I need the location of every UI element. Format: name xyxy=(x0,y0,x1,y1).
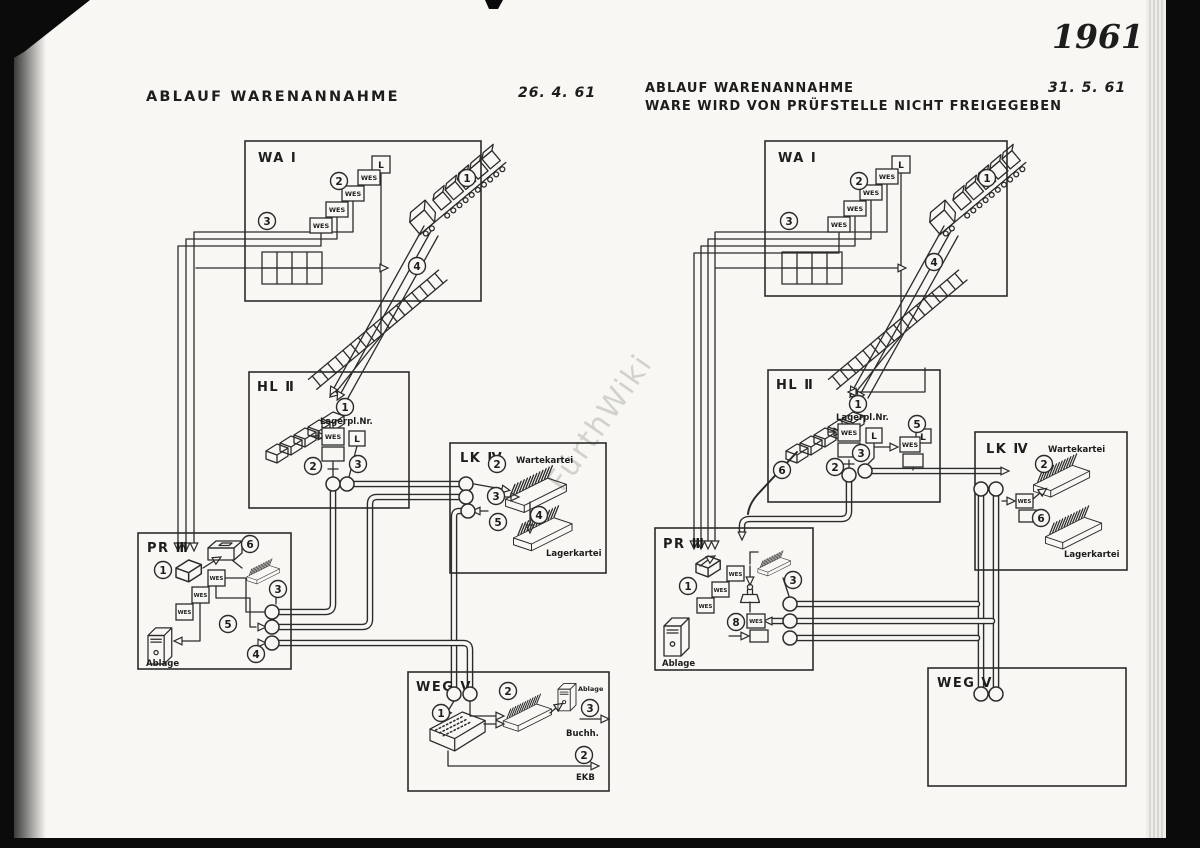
wes-slip-label: WES xyxy=(325,433,342,441)
tube-endpoint xyxy=(989,482,1003,496)
pneumatic-tubes-right xyxy=(742,471,1001,687)
svg-text:4: 4 xyxy=(252,649,259,661)
tube-endpoint xyxy=(463,687,477,701)
tube-endpoint xyxy=(461,504,475,518)
wes-slip-label: WES xyxy=(345,190,362,198)
pallet-cube-icon xyxy=(280,436,302,455)
l-slip-label: L xyxy=(898,161,904,171)
tube-endpoint xyxy=(340,477,354,491)
pneumatic-tubes-left xyxy=(279,484,470,687)
station-pr-left: PR Ⅲ WES WES WES Ablage 1 6 3 5 4 xyxy=(138,533,291,669)
svg-text:8: 8 xyxy=(732,617,739,629)
svg-text:3: 3 xyxy=(354,459,361,471)
wa-label: WA Ⅰ xyxy=(258,151,297,166)
lagerkartei-note: Lagerkartei xyxy=(546,549,602,559)
step-circle: 6 xyxy=(774,462,791,479)
card-stack-icon xyxy=(758,551,791,576)
watermark: FürthWiki xyxy=(540,347,660,497)
step-circle: 1 xyxy=(680,578,697,595)
svg-text:2: 2 xyxy=(493,459,500,471)
station-wa-left: WA Ⅰ L WES WES WES WES 1 2 3 4 xyxy=(245,141,511,389)
svg-text:5: 5 xyxy=(913,419,920,431)
svg-text:1: 1 xyxy=(437,708,444,720)
step-circle: 2 xyxy=(1036,456,1053,473)
tube-endpoint xyxy=(858,464,872,478)
step-circle: 8 xyxy=(728,614,745,631)
tube-endpoint xyxy=(974,687,988,701)
wes-slip-label: WES xyxy=(902,441,919,449)
wes-slip-label: WES xyxy=(194,593,208,599)
svg-text:4: 4 xyxy=(535,510,542,522)
lk-label: LK Ⅳ xyxy=(986,442,1029,457)
svg-text:2: 2 xyxy=(855,176,862,188)
step-circle: 3 xyxy=(488,488,505,505)
buchhaltung-note: Buchh. xyxy=(566,729,599,739)
ekb-note: EKB xyxy=(576,773,595,783)
tube-endpoint xyxy=(783,631,797,645)
book-spine-shadow xyxy=(0,0,14,848)
rubber-stamp-icon xyxy=(741,584,760,602)
wes-slip-label: WES xyxy=(729,572,743,578)
svg-text:6: 6 xyxy=(246,539,253,551)
svg-text:2: 2 xyxy=(580,750,587,762)
hl-label: HL Ⅱ xyxy=(776,378,814,393)
svg-text:3: 3 xyxy=(586,703,593,715)
spine-gradient xyxy=(14,0,46,848)
svg-text:3: 3 xyxy=(789,575,796,587)
step-circle: 4 xyxy=(409,258,426,275)
right-title: ABLAUF WARENANNAHME xyxy=(645,81,854,96)
delivery-truck-icon xyxy=(404,144,511,240)
pallet-cube-icon xyxy=(294,428,316,447)
wes-tray xyxy=(903,454,923,467)
pallet-cube-icon xyxy=(786,444,808,463)
sorting-grid-icon xyxy=(262,252,322,284)
l-slip-label: L xyxy=(354,435,360,445)
page-stack xyxy=(1146,0,1168,848)
svg-text:1: 1 xyxy=(159,565,166,577)
station-pr-right: PR Ⅲ WES WES WES WES Ablage 1 3 8 xyxy=(655,528,813,670)
wes-tray xyxy=(322,447,344,461)
wes-tray xyxy=(750,630,768,642)
wes-slip-label: WES xyxy=(178,610,192,616)
step-circle: 3 xyxy=(781,213,798,230)
step-circle: 3 xyxy=(785,572,802,589)
tube-endpoint xyxy=(783,614,797,628)
step-circle: 1 xyxy=(433,705,450,722)
step-circle: 1 xyxy=(459,170,476,187)
wa-label: WA Ⅰ xyxy=(778,151,817,166)
svg-text:1: 1 xyxy=(983,173,990,185)
step-circle: 2 xyxy=(827,459,844,476)
svg-text:2: 2 xyxy=(335,176,342,188)
flow-lines-left xyxy=(178,173,601,766)
pr-label: PR Ⅲ xyxy=(147,541,189,556)
wes-slip-label: WES xyxy=(210,576,224,582)
left-date: 26. 4. 61 xyxy=(518,85,596,101)
svg-text:2: 2 xyxy=(831,462,838,474)
step-circle: 3 xyxy=(270,581,287,598)
svg-text:3: 3 xyxy=(263,216,270,228)
conveyor-ramp-icon xyxy=(828,270,967,389)
step-circle: 1 xyxy=(850,396,867,413)
station-hl-left: HL Ⅱ Lagerpl.Nr. WES L 1 2 3 xyxy=(249,372,409,508)
tube-endpoint xyxy=(265,605,279,619)
right-subtitle: WARE WIRD VON PRÜFSTELLE NICHT FREIGEGEB… xyxy=(645,98,1062,114)
step-circle: 1 xyxy=(337,399,354,416)
l-slip-label: L xyxy=(920,433,926,443)
hl-label: HL Ⅱ xyxy=(257,380,295,395)
tube-endpoint xyxy=(326,477,340,491)
top-notch xyxy=(485,0,503,9)
right-date: 31. 5. 61 xyxy=(1048,80,1126,96)
svg-text:6: 6 xyxy=(778,465,785,477)
svg-text:1: 1 xyxy=(684,581,691,593)
svg-text:4: 4 xyxy=(413,261,420,273)
lagerplatz-note: Lagerpl.Nr. xyxy=(836,413,889,423)
svg-text:2: 2 xyxy=(1040,459,1047,471)
delivery-truck-icon xyxy=(924,144,1031,240)
wes-slip-label: WES xyxy=(1018,499,1032,505)
right-book-edge xyxy=(1166,0,1200,848)
svg-text:1: 1 xyxy=(854,399,861,411)
return-goods-line xyxy=(748,452,797,514)
step-circle: 4 xyxy=(531,507,548,524)
step-circle: 5 xyxy=(909,416,926,433)
step-circle: 2 xyxy=(331,173,348,190)
lagerplatz-note: Lagerpl.Nr. xyxy=(320,417,373,427)
svg-text:2: 2 xyxy=(309,461,316,473)
svg-text:3: 3 xyxy=(274,584,281,596)
step-circle: 4 xyxy=(248,646,265,663)
tube-endpoint xyxy=(459,490,473,504)
tube-endpoint xyxy=(447,687,461,701)
wes-slip-label: WES xyxy=(714,588,728,594)
tube-endpoint xyxy=(265,636,279,650)
tube-endpoint xyxy=(265,620,279,634)
step-circle: 5 xyxy=(220,616,237,633)
pallet-cube-icon xyxy=(814,428,836,447)
tube-endpoint xyxy=(783,597,797,611)
step-circle: 2 xyxy=(500,683,517,700)
wes-slip-label: WES xyxy=(841,429,858,437)
step-circle: 1 xyxy=(155,562,172,579)
wes-slip-label: WES xyxy=(313,222,330,230)
step-circle: 6 xyxy=(242,536,259,553)
pallet-cube-icon xyxy=(266,444,288,463)
station-weg-right: WEG Ⅴ xyxy=(928,668,1126,786)
svg-text:2: 2 xyxy=(504,686,511,698)
binder-icon xyxy=(664,618,689,656)
svg-text:6: 6 xyxy=(1037,513,1044,525)
wes-slip-label: WES xyxy=(879,173,896,181)
wes-slip-label: WES xyxy=(361,174,378,182)
svg-text:3: 3 xyxy=(785,216,792,228)
card-stack-icon xyxy=(247,559,280,584)
ablage-note: Ablage xyxy=(578,685,604,693)
left-title: ABLAUF WARENANNAHME xyxy=(146,89,400,105)
station-weg-left: WEG Ⅴ Ablage Buchh. EKB 1 2 3 2 xyxy=(408,672,609,791)
lagerkartei-note: Lagerkartei xyxy=(1064,550,1120,560)
step-circle: 5 xyxy=(490,514,507,531)
step-circle: 2 xyxy=(576,747,593,764)
step-circle: 1 xyxy=(979,170,996,187)
l-slip-label: L xyxy=(871,432,877,442)
svg-text:4: 4 xyxy=(930,257,937,269)
step-circle: 3 xyxy=(350,456,367,473)
year-label: 1961 xyxy=(1052,17,1144,56)
step-circle: 3 xyxy=(853,445,870,462)
wes-slip-label: WES xyxy=(847,205,864,213)
wes-slip-label: WES xyxy=(831,221,848,229)
sorting-grid-icon xyxy=(782,252,842,284)
step-circle: 3 xyxy=(582,700,599,717)
pr-label: PR Ⅲ xyxy=(663,537,705,552)
tube-endpoint xyxy=(459,477,473,491)
wes-slip-label: WES xyxy=(329,206,346,214)
step-circle: 4 xyxy=(926,254,943,271)
bottom-book-edge xyxy=(0,838,1200,848)
step-circle: 6 xyxy=(1033,510,1050,527)
diagram-right: ABLAUF WARENANNAHME WARE WIRD VON PRÜFST… xyxy=(645,80,1127,786)
pallet-cube-icon xyxy=(800,436,822,455)
wartekartei-note: Wartekartei xyxy=(516,456,573,466)
tube-endpoint xyxy=(989,687,1003,701)
wes-slip-label: WES xyxy=(699,604,713,610)
svg-text:3: 3 xyxy=(492,491,499,503)
diagram-left: ABLAUF WARENANNAHME 26. 4. 61 xyxy=(138,85,609,791)
tube-endpoint xyxy=(842,468,856,482)
svg-text:1: 1 xyxy=(463,173,470,185)
wes-slip-label: WES xyxy=(863,189,880,197)
svg-text:5: 5 xyxy=(224,619,231,631)
step-circle: 2 xyxy=(305,458,322,475)
wes-slip-label: WES xyxy=(749,619,763,625)
parcel-icon xyxy=(176,560,201,582)
step-circle: 2 xyxy=(489,456,506,473)
diagram-canvas: FürthWiki 1961 ABLAUF WARENANNAHME 26. 4… xyxy=(0,0,1200,848)
svg-text:3: 3 xyxy=(857,448,864,460)
card-file-icon xyxy=(1045,506,1101,549)
ablage-note: Ablage xyxy=(662,659,695,669)
tube-endpoint xyxy=(974,482,988,496)
svg-text:5: 5 xyxy=(494,517,501,529)
step-circle: 3 xyxy=(259,213,276,230)
step-circle: 2 xyxy=(851,173,868,190)
ablage-note: Ablage xyxy=(146,659,179,669)
scanned-book-page: FürthWiki 1961 ABLAUF WARENANNAHME 26. 4… xyxy=(0,0,1200,848)
svg-text:1: 1 xyxy=(341,402,348,414)
